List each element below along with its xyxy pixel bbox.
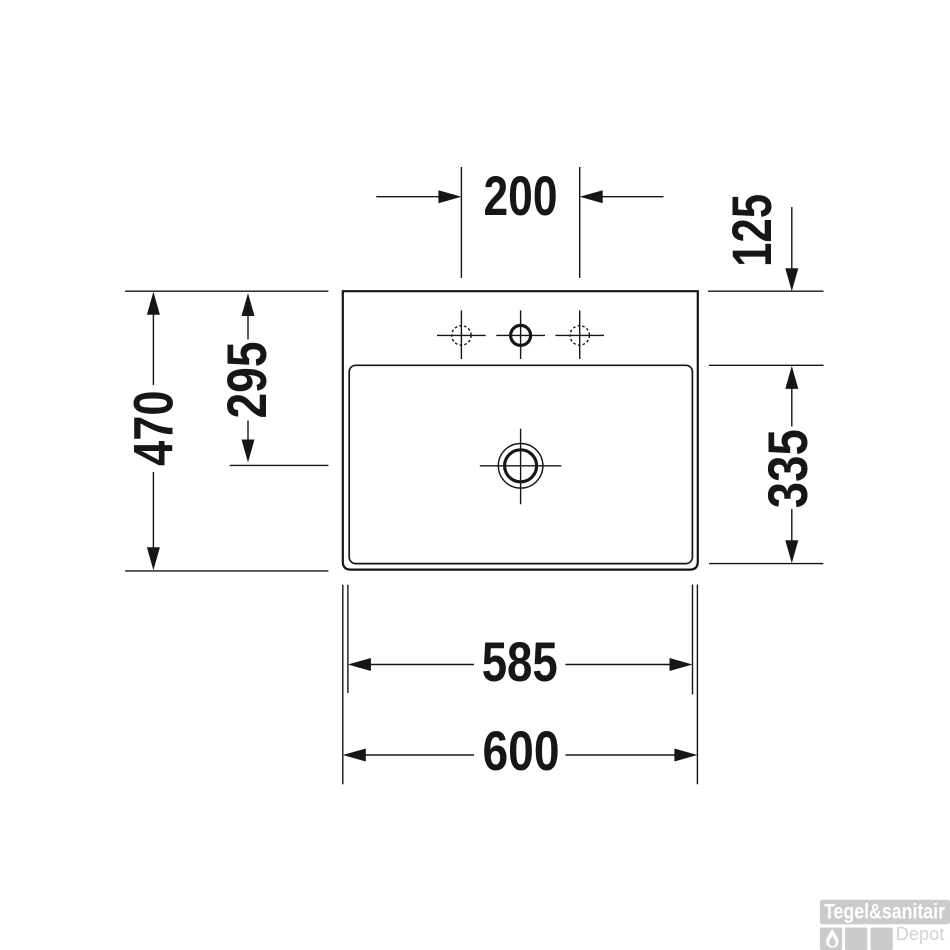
svg-text:335: 335 — [756, 429, 819, 508]
svg-text:295: 295 — [215, 342, 278, 419]
svg-text:585: 585 — [482, 630, 558, 693]
svg-text:Tegel&sanitair: Tegel&sanitair — [824, 901, 945, 924]
svg-text:200: 200 — [484, 164, 558, 227]
svg-text:Depot: Depot — [896, 923, 945, 944]
svg-text:125: 125 — [720, 194, 783, 267]
svg-text:600: 600 — [483, 719, 560, 782]
svg-text:470: 470 — [121, 391, 184, 466]
